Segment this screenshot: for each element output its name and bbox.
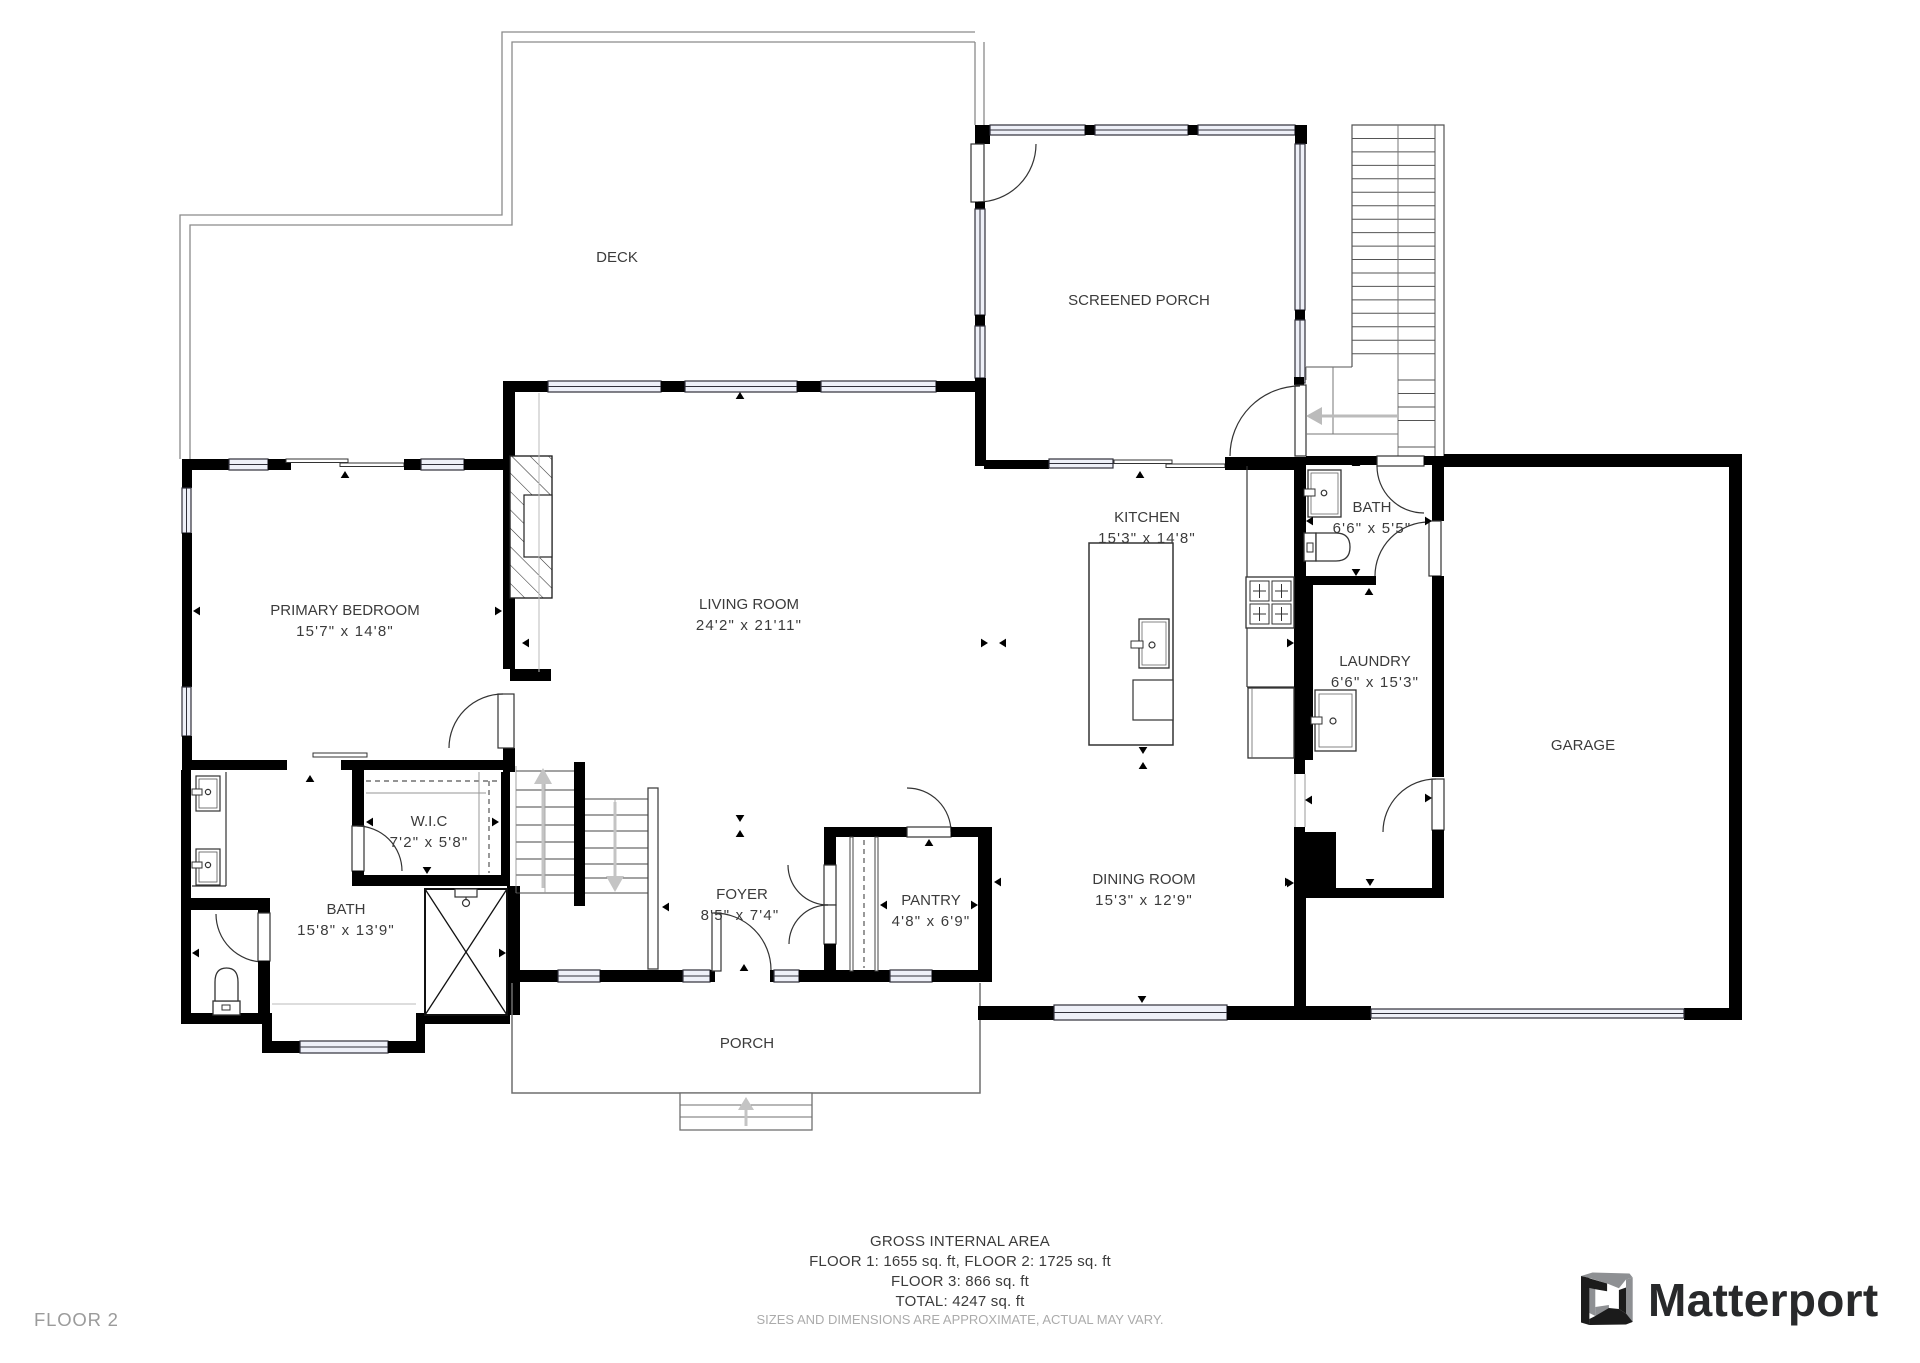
svg-text:W.I.C: W.I.C: [411, 813, 448, 830]
svg-text:7'2" x 5'8": 7'2" x 5'8": [390, 834, 469, 851]
svg-text:15'3" x 12'9": 15'3" x 12'9": [1095, 892, 1193, 909]
svg-text:GARAGE: GARAGE: [1551, 737, 1615, 754]
svg-text:6'6" x 15'3": 6'6" x 15'3": [1331, 674, 1419, 691]
svg-text:FOYER: FOYER: [716, 886, 768, 903]
svg-text:PANTRY: PANTRY: [901, 892, 960, 909]
svg-text:PORCH: PORCH: [720, 1035, 774, 1052]
svg-text:FLOOR 1: 1655 sq. ft, FLOOR 2:: FLOOR 1: 1655 sq. ft, FLOOR 2: 1725 sq. …: [809, 1253, 1111, 1270]
svg-text:LIVING ROOM: LIVING ROOM: [699, 596, 799, 613]
svg-text:FLOOR 2: FLOOR 2: [34, 1309, 119, 1330]
svg-text:4'8" x 6'9": 4'8" x 6'9": [892, 913, 971, 930]
svg-text:LAUNDRY: LAUNDRY: [1339, 653, 1410, 670]
svg-text:Matterport: Matterport: [1648, 1274, 1878, 1326]
svg-text:8'5" x 7'4": 8'5" x 7'4": [701, 907, 780, 924]
svg-text:DECK: DECK: [596, 249, 638, 266]
svg-text:TOTAL: 4247 sq. ft: TOTAL: 4247 sq. ft: [896, 1293, 1026, 1310]
svg-text:DINING ROOM: DINING ROOM: [1092, 871, 1195, 888]
svg-text:SCREENED PORCH: SCREENED PORCH: [1068, 292, 1210, 309]
svg-text:GROSS INTERNAL AREA: GROSS INTERNAL AREA: [870, 1233, 1050, 1250]
svg-text:BATH: BATH: [327, 901, 366, 918]
svg-text:PRIMARY BEDROOM: PRIMARY BEDROOM: [270, 602, 419, 619]
svg-text:BATH: BATH: [1353, 499, 1392, 516]
svg-text:15'7" x 14'8": 15'7" x 14'8": [296, 623, 394, 640]
svg-text:FLOOR 3: 866 sq. ft: FLOOR 3: 866 sq. ft: [891, 1273, 1030, 1290]
svg-text:24'2" x 21'11": 24'2" x 21'11": [696, 617, 802, 634]
svg-text:6'6" x 5'5": 6'6" x 5'5": [1333, 520, 1412, 537]
svg-text:KITCHEN: KITCHEN: [1114, 509, 1180, 526]
svg-text:15'3" x 14'8": 15'3" x 14'8": [1098, 530, 1196, 547]
svg-text:15'8" x 13'9": 15'8" x 13'9": [297, 922, 395, 939]
svg-text:SIZES AND DIMENSIONS ARE APPRO: SIZES AND DIMENSIONS ARE APPROXIMATE, AC…: [757, 1312, 1164, 1327]
